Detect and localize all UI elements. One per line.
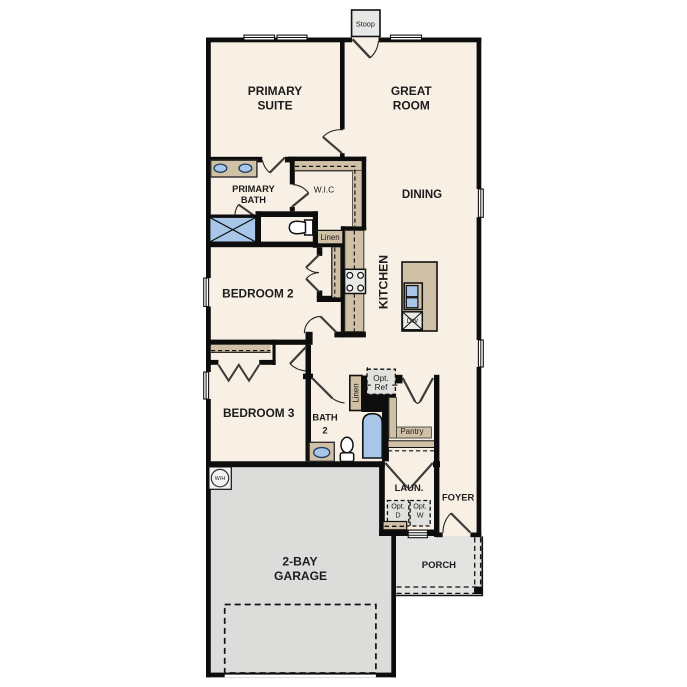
svg-text:2: 2 [322, 424, 327, 435]
svg-text:FOYER: FOYER [442, 492, 475, 503]
svg-text:PRIMARY: PRIMARY [232, 184, 275, 194]
svg-text:Opt.: Opt. [413, 502, 427, 511]
svg-text:Linen: Linen [320, 233, 339, 242]
svg-text:PRIMARY: PRIMARY [248, 84, 302, 98]
svg-text:Linen: Linen [352, 383, 361, 402]
svg-text:D: D [395, 511, 400, 520]
svg-text:LAUN.: LAUN. [395, 482, 424, 493]
svg-text:W: W [417, 511, 424, 520]
svg-text:Opt.: Opt. [373, 374, 388, 383]
svg-text:GARAGE: GARAGE [274, 569, 327, 583]
svg-text:PORCH: PORCH [422, 560, 456, 571]
svg-text:DINING: DINING [402, 189, 442, 201]
svg-text:BEDROOM 3: BEDROOM 3 [223, 406, 295, 420]
svg-text:BEDROOM 2: BEDROOM 2 [222, 286, 294, 300]
svg-text:DW: DW [407, 318, 419, 325]
svg-text:BATH: BATH [241, 195, 266, 205]
svg-text:KITCHEN: KITCHEN [377, 255, 391, 309]
svg-text:GREAT: GREAT [391, 84, 432, 98]
svg-text:Ref: Ref [375, 383, 388, 392]
svg-text:Pantry: Pantry [400, 427, 423, 436]
svg-text:SUITE: SUITE [257, 99, 292, 113]
svg-text:Stoop: Stoop [356, 19, 375, 28]
svg-text:2-BAY: 2-BAY [282, 555, 317, 569]
svg-text:W/H: W/H [215, 476, 226, 482]
svg-text:Opt.: Opt. [391, 502, 405, 511]
svg-text:ROOM: ROOM [393, 99, 430, 113]
svg-text:W.I.C: W.I.C [314, 185, 334, 195]
svg-text:BATH: BATH [312, 412, 338, 423]
